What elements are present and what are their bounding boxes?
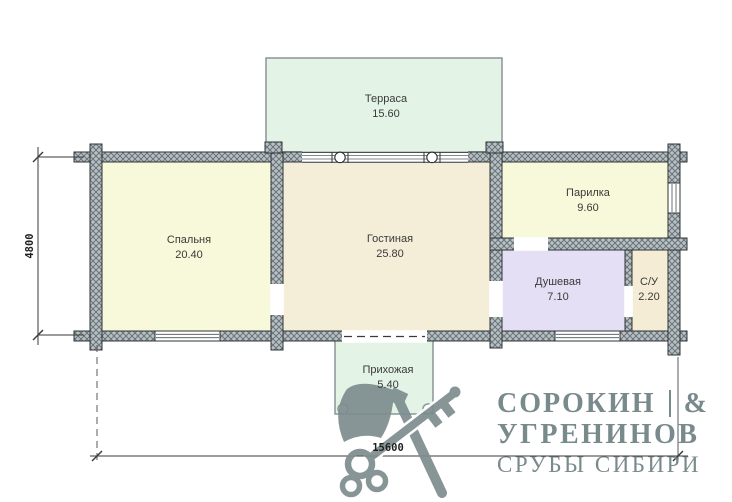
wall-divider-bedroom — [271, 152, 283, 350]
room-area: 7.10 — [488, 290, 628, 305]
post-column — [335, 152, 345, 162]
logo-line-1: СОРОКИН & — [497, 388, 709, 419]
dimension-label-horizontal: 15600 — [356, 442, 420, 454]
wall-stub-terrace-left — [265, 142, 282, 153]
room-area: 9.60 — [518, 201, 658, 216]
room-label-terrace: Терраса 15.60 — [316, 92, 456, 122]
window-shower — [555, 331, 620, 341]
post-column — [427, 152, 437, 162]
room-name: Гостиная — [320, 232, 460, 247]
wall-west — [90, 144, 102, 350]
door-sauna — [514, 237, 548, 251]
room-label-hall: Прихожая 5.40 — [318, 363, 458, 393]
window-sauna-east — [668, 183, 680, 213]
room-area: 15.60 — [316, 107, 456, 122]
wall-stub-terrace-right — [486, 142, 503, 153]
company-logo: СОРОКИН & УГРЕНИНОВ СРУБЫ СИБИРИ — [497, 388, 709, 478]
room-area: 25.80 — [320, 247, 460, 262]
room-label-shower: Душевая 7.10 — [488, 275, 628, 305]
room-area: 2.20 — [619, 290, 679, 305]
brand-tagline: СРУБЫ СИБИРИ — [497, 451, 709, 478]
room-name: Спальня — [119, 233, 259, 248]
logo-divider — [669, 390, 671, 417]
door-bedroom — [270, 284, 284, 315]
room-name: Душевая — [488, 275, 628, 290]
window-bedroom — [155, 331, 220, 341]
room-name: С/У — [619, 275, 679, 290]
brand-ampersand: & — [684, 388, 709, 419]
room-area: 5.40 — [318, 378, 458, 393]
axe-and-key-watermark — [338, 384, 460, 495]
room-name: Терраса — [316, 92, 456, 107]
room-name: Прихожая — [318, 363, 458, 378]
brand-name-top: СОРОКИН — [497, 388, 656, 419]
room-label-bedroom: Спальня 20.40 — [119, 233, 259, 263]
terrace-window-band — [302, 152, 468, 164]
room-label-living: Гостиная 25.80 — [320, 232, 460, 262]
brand-name-bottom: УГРЕНИНОВ — [497, 419, 709, 450]
room-label-wc: С/У 2.20 — [619, 275, 679, 305]
dimension-label-vertical: 4800 — [24, 224, 36, 268]
floor-plan-canvas: Терраса 15.60 Спальня 20.40 Гостиная 25.… — [0, 0, 732, 502]
room-name: Парилка — [518, 186, 658, 201]
room-area: 20.40 — [119, 248, 259, 263]
room-label-sauna: Парилка 9.60 — [518, 186, 658, 216]
dimension-vertical-4800 — [33, 147, 84, 345]
